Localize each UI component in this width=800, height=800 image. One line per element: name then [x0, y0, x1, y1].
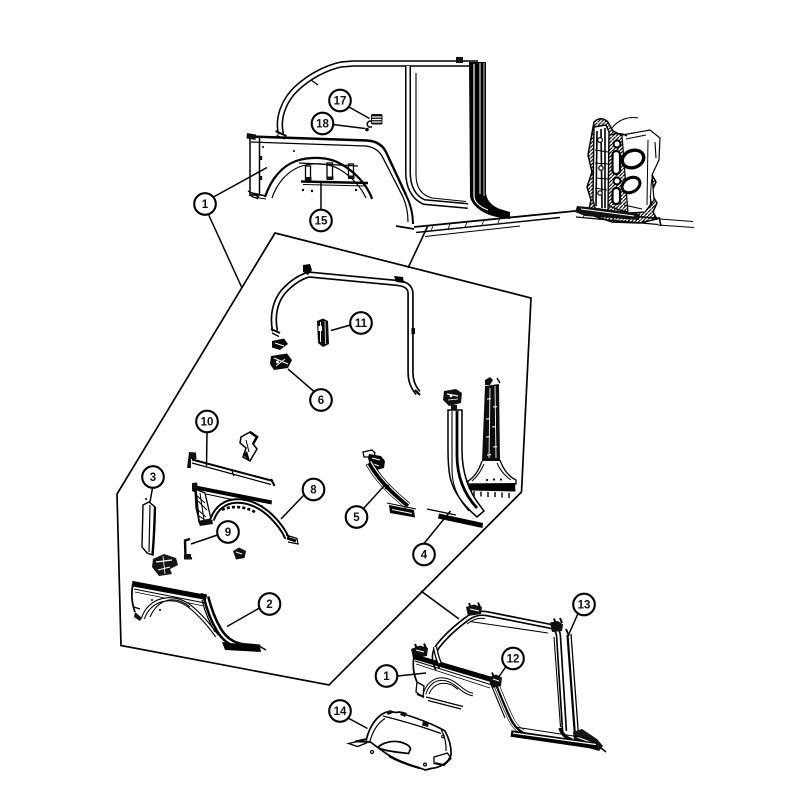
svg-text:11: 11	[355, 318, 368, 330]
svg-text:17: 17	[334, 96, 347, 108]
svg-text:6: 6	[318, 395, 324, 407]
svg-text:3: 3	[150, 472, 156, 484]
svg-text:9: 9	[225, 527, 231, 539]
svg-text:4: 4	[421, 550, 428, 562]
svg-text:18: 18	[316, 119, 329, 131]
svg-text:8: 8	[310, 485, 317, 497]
svg-text:10: 10	[201, 417, 214, 429]
svg-text:1: 1	[202, 199, 209, 211]
svg-text:15: 15	[315, 216, 328, 228]
svg-text:14: 14	[334, 706, 347, 718]
svg-text:2: 2	[266, 599, 272, 611]
svg-text:13: 13	[578, 600, 591, 612]
svg-text:12: 12	[507, 654, 520, 666]
svg-text:1: 1	[383, 671, 390, 683]
svg-text:5: 5	[353, 512, 360, 524]
